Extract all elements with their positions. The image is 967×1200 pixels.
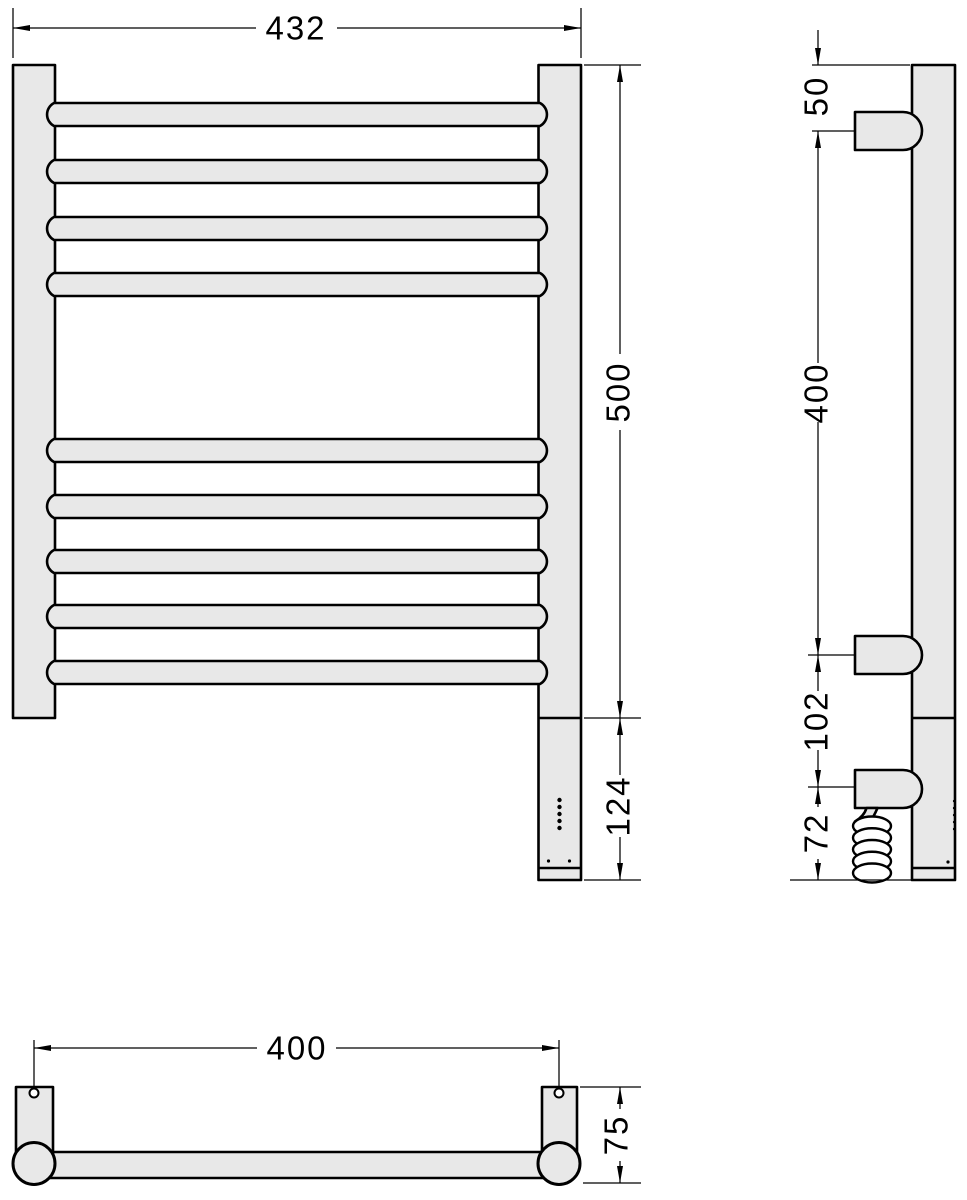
led-tick	[953, 800, 956, 803]
arrow-up-icon	[617, 65, 623, 82]
arrow-up-icon	[617, 718, 623, 735]
towel-bar	[47, 217, 547, 240]
power-cable-coil	[853, 817, 891, 883]
towel-bar	[47, 550, 547, 573]
arrow-up-icon	[815, 131, 821, 148]
arrow-right-icon	[564, 25, 581, 31]
arrow-down-icon	[815, 863, 821, 880]
arrow-down-icon	[815, 770, 821, 787]
dimension-connector-offset: 102	[798, 655, 856, 787]
dimension-124-label: 124	[600, 775, 637, 836]
arrow-down-icon	[815, 638, 821, 655]
arrow-left-icon	[13, 25, 30, 31]
arrow-down-icon	[617, 1166, 623, 1183]
dimension-mount-spacing: 400	[34, 1030, 559, 1089]
front-right-rail-with-heater	[539, 65, 582, 880]
led-tick	[953, 814, 956, 817]
arrow-right-icon	[542, 1045, 559, 1051]
screw-hole-left	[30, 1089, 39, 1098]
towel-bar	[47, 495, 547, 518]
wall-bracket-top	[855, 112, 922, 150]
dimension-depth: 75	[580, 1087, 641, 1183]
dimension-heater-section: 124	[584, 718, 641, 880]
side-view: 50 400 102 72	[790, 30, 956, 883]
led-tick	[953, 828, 956, 831]
dimension-500-label: 500	[600, 361, 637, 422]
arrow-left-icon	[34, 1045, 51, 1051]
led-tick	[953, 821, 956, 824]
dimension-height: 500	[584, 65, 641, 718]
dimension-width: 432	[13, 8, 581, 58]
dimension-bracket-span: 400	[798, 131, 856, 655]
dimension-50-label: 50	[798, 76, 835, 117]
led-dot	[557, 805, 561, 809]
led-dot	[557, 826, 561, 830]
towel-bar	[47, 273, 547, 296]
led-dot	[557, 819, 561, 823]
arrow-up-icon	[617, 1087, 623, 1104]
led-dot	[557, 812, 561, 816]
screw-hole-right	[555, 1089, 564, 1098]
arrow-up-icon	[815, 787, 821, 804]
arrow-up-icon	[815, 655, 821, 672]
towel-bar	[47, 661, 547, 684]
heater-screw-dot-left	[547, 859, 550, 862]
led-dot	[557, 798, 561, 802]
bottom-cross-bar	[34, 1152, 559, 1178]
heater-screw-dot-right	[568, 859, 571, 862]
led-tick	[953, 807, 956, 810]
towel-bar	[47, 103, 547, 126]
front-view: 432 500 124	[13, 8, 641, 880]
towel-bars	[47, 103, 547, 684]
cable-connector	[855, 770, 922, 808]
wall-bracket-bottom	[855, 636, 922, 674]
bottom-view: 400 75	[13, 1030, 641, 1185]
dimension-400-bottom-label: 400	[266, 1030, 327, 1067]
towel-bar	[47, 160, 547, 183]
arrow-down-icon	[617, 701, 623, 718]
rail-tube-left	[13, 1143, 55, 1185]
rail-tube-right	[538, 1143, 580, 1185]
side-rail	[912, 65, 955, 880]
side-screw-dot	[946, 860, 949, 863]
arrow-down-icon	[617, 863, 623, 880]
towel-rail-drawing: 432 500 124	[0, 0, 967, 1200]
dimension-400-side-label: 400	[798, 362, 835, 423]
towel-bar	[47, 439, 547, 462]
dimension-75-label: 75	[598, 1115, 635, 1156]
arrow-down-icon	[815, 48, 821, 65]
dimension-102-label: 102	[798, 690, 835, 751]
towel-bar	[47, 605, 547, 628]
dimension-72-label: 72	[798, 813, 835, 854]
technical-drawing-page: 432 500 124	[0, 0, 967, 1200]
dimension-432-label: 432	[265, 10, 326, 47]
